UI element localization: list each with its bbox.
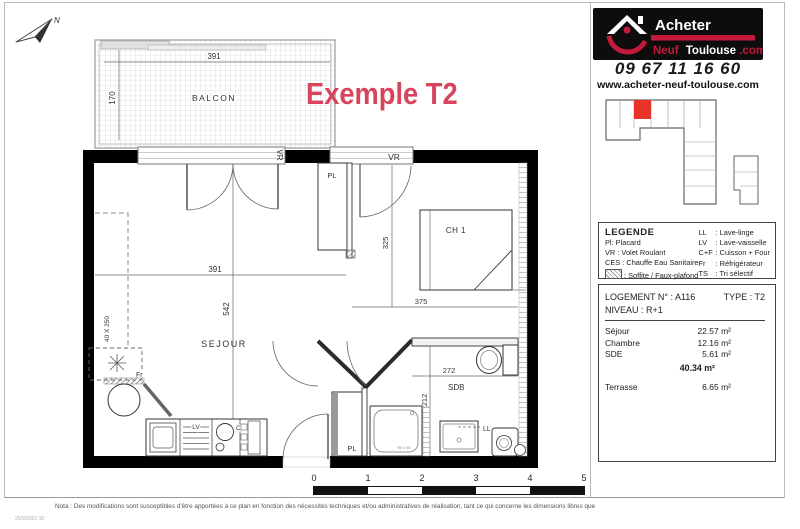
shower: 90 x 90 [370, 406, 422, 456]
website-link[interactable]: www.acheter-neuf-toulouse.com [593, 79, 763, 91]
ch1-window: VR [330, 147, 413, 164]
pl-ch1-label: PL [327, 171, 336, 180]
dim-ch1-height: 325 [381, 237, 390, 250]
unit-info-box: LOGEMENT N° : A116 TYPE : T2 NIVEAU : R+… [598, 284, 776, 462]
legend-item: Fr: Réfrigérateur [699, 259, 772, 269]
unit-level: NIVEAU : R+1 [605, 304, 765, 321]
legend-item: VR : Volet Roulant [605, 248, 699, 258]
brand-logo[interactable]: Acheter Neuf Toulouse .com [593, 8, 763, 60]
area-list: Séjour22.57 m² Chambre12.16 m² SDE5.61 m… [605, 326, 765, 393]
dim-ch1-width: 375 [415, 297, 428, 306]
balcony-label: BALCON [192, 93, 236, 103]
pl-hall-label: PL [347, 444, 356, 453]
brand-name-top: Acheter [655, 17, 711, 34]
ceiling-symbol [108, 354, 126, 372]
french-door [187, 164, 278, 210]
shower-size-label: 90 x 90 [397, 445, 411, 450]
plan-title: Exemple T2 [306, 76, 458, 112]
disclaimer-text: Nota : Des modifications sont susceptibl… [55, 503, 785, 510]
vr-label-sejour: VR [275, 149, 284, 160]
key-plan-highlight [634, 100, 651, 119]
phone-number[interactable]: 09 67 11 16 60 [593, 59, 763, 79]
washbasin [440, 421, 478, 452]
sdb-label: SDB [448, 383, 464, 392]
north-label: N [54, 16, 60, 25]
vr-label-ch1: VR [388, 152, 400, 162]
ll-label: LL [483, 426, 491, 433]
bedroom: PL CH 1 325 375 [318, 163, 526, 307]
legend-item-soffit: : Soffite / Faux-plafond [605, 269, 699, 281]
dim-sejour-width: 391 [208, 265, 222, 274]
print-stamp: 25/9/2021 10 [15, 516, 44, 522]
entrance-door [283, 414, 330, 467]
toilet [477, 345, 519, 375]
dim-sejour-height: 542 [222, 302, 231, 316]
hatch-icon [605, 269, 622, 279]
ts-bin [515, 445, 526, 456]
bathroom: 272 SDB 212 90 x 90 LL [370, 338, 526, 456]
sejour-label: SEJOUR [201, 339, 247, 349]
north-arrow-icon: N [16, 16, 60, 43]
legend-box: LEGENDE Pl: Placard VR : Volet Roulant C… [598, 222, 776, 279]
key-plan [598, 94, 763, 212]
cooktop-burner-small [216, 443, 224, 451]
dim-soffit: 40 X 250 [104, 316, 111, 342]
brand-name-bottom: Neuf Toulouse .com [653, 45, 763, 57]
unit-type: TYPE : T2 [724, 290, 765, 304]
area-row: Séjour22.57 m² [605, 326, 765, 338]
scale-tick: 5 [578, 473, 590, 483]
wall-insulation-hatch [519, 163, 527, 456]
hall-closet: PL [332, 388, 367, 456]
footer-divider [4, 497, 784, 498]
scale-bar [313, 486, 585, 495]
floor-plan-sheet: { "sheet": { "title": "Exemple T2", "not… [0, 0, 800, 529]
scale-tick: 2 [416, 473, 428, 483]
cooktop-burner [217, 424, 234, 441]
dim-balcon-width: 391 [207, 52, 221, 61]
ch1-label: CH 1 [446, 226, 466, 235]
legend-item: LV: Lave-vaisselle [699, 238, 772, 248]
bed [420, 210, 526, 290]
key-plan-annex [734, 156, 758, 204]
water-heater [108, 384, 140, 416]
legend-item: LL: Lave-linge [699, 228, 772, 238]
balcony: 391 170 BALCON [95, 40, 335, 148]
legend-left-column: LEGENDE Pl: Placard VR : Volet Roulant C… [605, 228, 699, 276]
sejour-window: VR [138, 147, 285, 164]
scale-tick: 0 [308, 473, 320, 483]
legend-item: TS: Tri sélectif [699, 269, 772, 279]
scale-tick: 1 [362, 473, 374, 483]
terrasse-row: Terrasse6.65 m² [605, 382, 765, 394]
scale-tick: 4 [524, 473, 536, 483]
dim-sdb-width: 272 [443, 366, 456, 375]
panel-divider [590, 2, 591, 497]
hall-walls [273, 340, 412, 387]
ch1-door [360, 166, 411, 217]
legend-item: Pl: Placard [605, 238, 699, 248]
legend-heading: LEGENDE [605, 228, 699, 238]
unit-header: LOGEMENT N° : A116 TYPE : T2 [605, 290, 765, 304]
soffit-zone: 40 X 250 [95, 213, 128, 348]
dim-balcon-height: 170 [108, 91, 117, 105]
fridge-zone: Fr [89, 348, 171, 416]
area-total: 40.34 m² [680, 362, 765, 375]
kitchen: LV C [146, 419, 267, 456]
dim-sdb-height: 212 [420, 394, 429, 407]
legend-item: C+F: Cuisson + Four [699, 248, 772, 258]
unit-number: LOGEMENT N° : A116 [605, 290, 724, 304]
legend-item: CES : Chauffe Eau Sanitaire [605, 258, 699, 268]
scale-tick: 3 [470, 473, 482, 483]
area-row: Chambre12.16 m² [605, 338, 765, 350]
floor-plan-drawing: N 391 170 BALCON VR VR [0, 0, 590, 500]
legend-right-column: LL: Lave-linge LV: Lave-vaisselle C+F: C… [699, 228, 772, 276]
cooktop-label: C [236, 425, 241, 432]
lv-label: LV [192, 424, 200, 431]
area-total-row: 40.34 m² [605, 362, 765, 375]
corner-door [144, 384, 171, 416]
area-row: SDE5.61 m² [605, 349, 765, 361]
balcony-sill [148, 45, 266, 50]
